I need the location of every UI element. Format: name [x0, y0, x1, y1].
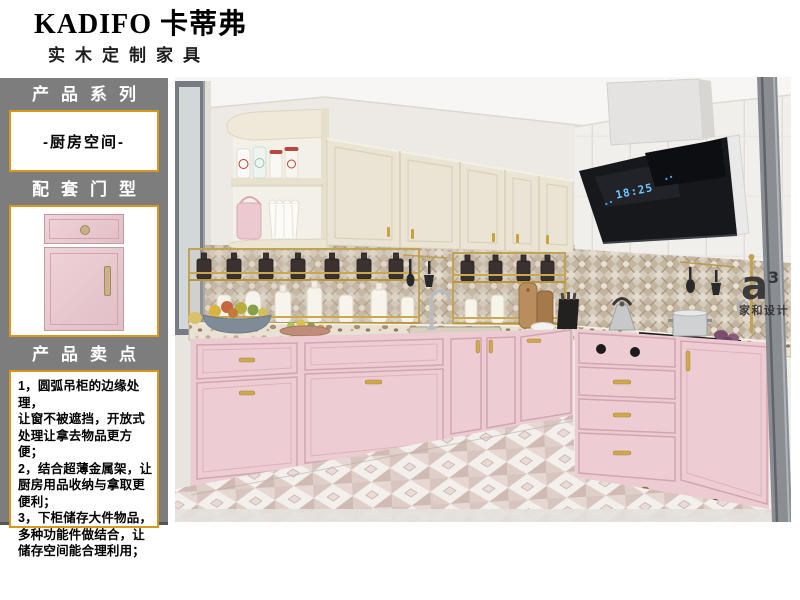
selling-line: 多种功能件做结合，让	[18, 527, 153, 544]
sidebar: 产品系列 -厨房空间- 配套门型 产品卖点 1，圆弧吊柜的边缘处理， 让窗不被遮…	[0, 78, 168, 525]
corner-shelf-unit	[227, 109, 329, 249]
door-front-panel	[44, 247, 124, 331]
watermark-letter: a	[741, 263, 768, 309]
selling-line: 让窗不被遮挡，开放式	[18, 411, 153, 428]
brand-logo: KADIFO 卡蒂弗	[34, 2, 247, 42]
hood-duct	[607, 79, 715, 145]
door-illustration	[44, 214, 124, 330]
cooking-pot	[668, 310, 712, 336]
brand-tagline: 实木定制家具	[48, 41, 210, 66]
door-preview-box	[9, 205, 159, 337]
selling-line: 储存空间能合理利用；	[18, 543, 153, 560]
section-label-door-type: 配套门型	[0, 180, 168, 200]
series-value: -厨房空间-	[43, 131, 125, 152]
cooktop-knob	[596, 344, 606, 354]
selling-line: 处理让拿去物品更方便；	[18, 428, 153, 461]
product-board: KADIFO 卡蒂弗 实木定制家具 产品系列 -厨房空间- 配套门型 产品卖点 …	[0, 0, 800, 600]
selling-line: 便利；	[18, 494, 153, 511]
selling-line: 1，圆弧吊柜的边缘处理，	[18, 378, 153, 411]
section-label-selling-points: 产品卖点	[0, 345, 168, 365]
cooktop-knob	[630, 347, 640, 357]
metal-rack-left	[189, 249, 419, 323]
watermark-sup: 3	[768, 268, 779, 287]
door-knob	[80, 225, 90, 235]
selling-line: 2，结合超薄金属架，让	[18, 461, 153, 478]
wall-return	[175, 335, 191, 489]
floor-foreground	[175, 509, 791, 522]
watermark-studio: 家和设计	[739, 303, 789, 317]
section-label-series: 产品系列	[0, 85, 168, 105]
door-handle	[104, 266, 111, 296]
series-value-box: -厨房空间-	[9, 110, 159, 172]
door-drawer-panel	[44, 214, 124, 244]
selling-line: 厨房用品收纳与拿取更	[18, 477, 153, 494]
kitchen-render: 18:25	[175, 77, 791, 522]
selling-line: 3，下柜储存大件物品，	[18, 510, 153, 527]
selling-points-box: 1，圆弧吊柜的边缘处理， 让窗不被遮挡，开放式 处理让拿去物品更方便； 2，结合…	[9, 370, 159, 528]
